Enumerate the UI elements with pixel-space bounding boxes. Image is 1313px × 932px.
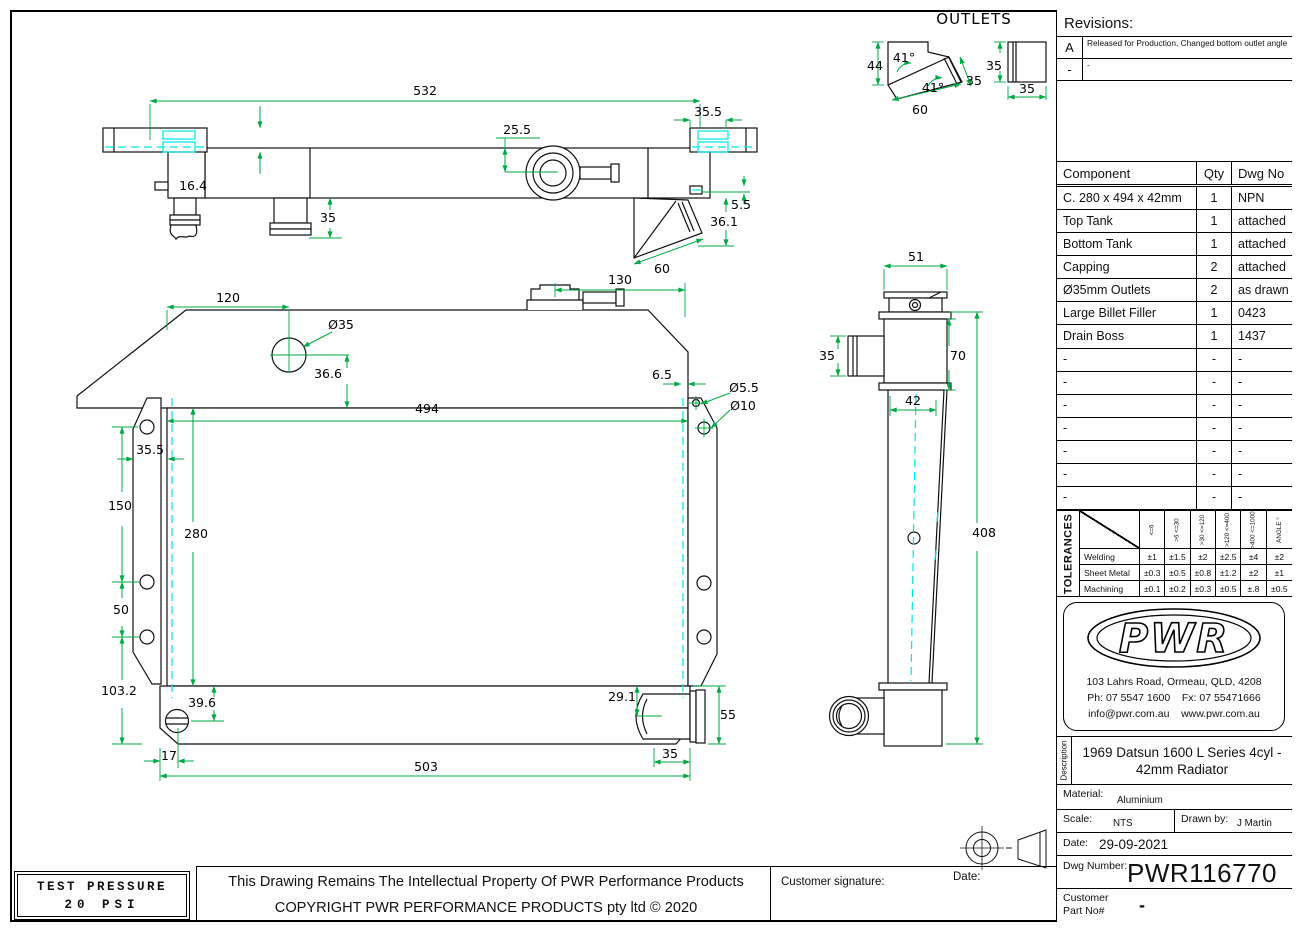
tolerances-label: TOLERANCES: [1062, 513, 1074, 594]
component-dwgno: -: [1232, 376, 1292, 389]
component-name: Drain Boss: [1057, 325, 1197, 347]
component-row: - - -: [1057, 464, 1292, 487]
component-row: Ø35mm Outlets 2 as drawn: [1057, 279, 1292, 302]
component-row: - - -: [1057, 487, 1292, 510]
tolerance-process: Machining: [1080, 581, 1140, 596]
component-dwgno: attached: [1232, 238, 1292, 251]
component-dwgno: -: [1232, 353, 1292, 366]
tolerance-process: Welding: [1080, 549, 1140, 564]
scale-cell: Scale: NTS: [1057, 810, 1175, 832]
date-block: Date: 29-09-2021: [1057, 832, 1292, 855]
component-name: -: [1057, 487, 1197, 509]
test-pressure-line1: TEST PRESSURE: [37, 878, 167, 896]
component-dwgno: attached: [1232, 215, 1292, 228]
revision-id: A: [1057, 37, 1083, 58]
date-value: 29-09-2021: [1099, 837, 1168, 852]
revisions-block: Revisions: A Released for Production, Ch…: [1057, 10, 1292, 161]
component-name: Ø35mm Outlets: [1057, 279, 1197, 301]
component-table: Component Qty Dwg No C. 280 x 494 x 42mm…: [1057, 161, 1292, 510]
component-name: -: [1057, 441, 1197, 463]
dwg-number-value: PWR116770: [1127, 858, 1277, 889]
test-pressure-line2: 20 PSI: [64, 896, 139, 914]
component-dwgno: -: [1232, 445, 1292, 458]
revisions-rows: A Released for Production, Changed botto…: [1057, 37, 1292, 81]
customer-part-value: -: [1139, 895, 1145, 916]
component-qty: -: [1197, 372, 1232, 394]
component-name: -: [1057, 395, 1197, 417]
tolerance-process: Sheet Metal: [1080, 565, 1140, 580]
component-qty: 2: [1197, 279, 1232, 301]
component-dwgno: attached: [1232, 261, 1292, 274]
component-row: Bottom Tank 1 attached: [1057, 233, 1292, 256]
component-table-header: Component Qty Dwg No: [1057, 162, 1292, 187]
component-dwgno: -: [1232, 468, 1292, 481]
tolerances-table: TOLERANCES <=6 >6 <=30 >30 <=120: [1057, 510, 1292, 596]
date-label: Date:: [1063, 837, 1088, 849]
revision-row: - -: [1057, 59, 1292, 81]
tolerance-row: Welding ±1 ±1.5 ±2 ±2.5 ±4 ±2: [1080, 549, 1292, 565]
footer-divider-v: [196, 866, 197, 922]
component-qty: 1: [1197, 325, 1232, 347]
component-dwgno: 0423: [1232, 307, 1292, 320]
component-name: Bottom Tank: [1057, 233, 1197, 255]
tolerance-row: Machining ±0.1 ±0.2 ±0.3 ±0.5 ±.8 ±0.5: [1080, 581, 1292, 596]
diagonal-cell: [1080, 511, 1140, 548]
dwg-number-label: Dwg Number:: [1063, 860, 1127, 872]
component-row: Capping 2 attached: [1057, 256, 1292, 279]
copyright-line2: COPYRIGHT PWR PERFORMANCE PRODUCTS pty l…: [200, 895, 772, 921]
company-phone-fax: Ph: 07 5547 1600 Fx: 07 55471666: [1064, 690, 1284, 706]
tolerance-range-header: >120 <=400: [1216, 511, 1241, 548]
tolerance-row: Sheet Metal ±0.3 ±0.5 ±0.8 ±1.2 ±2 ±1: [1080, 565, 1292, 581]
component-row: Drain Boss 1 1437: [1057, 325, 1292, 348]
component-name: Capping: [1057, 256, 1197, 278]
drawnby-cell: Drawn by: J Martin: [1175, 810, 1292, 832]
test-pressure-box: TEST PRESSURE 20 PSI: [14, 871, 190, 920]
material-value: Aluminium: [1117, 795, 1163, 806]
pwr-logo-text: PWR: [1119, 616, 1229, 662]
drawing-sheet: { "sheet": { "bg": "#ffffff", "line_colo…: [0, 0, 1313, 932]
company-frame: PWR 103 Lahrs Road, Ormeau, QLD, 4208 Ph…: [1063, 602, 1285, 731]
component-row: - - -: [1057, 349, 1292, 372]
pwr-logo: PWR: [1084, 607, 1264, 669]
drawnby-value: J Martin: [1237, 818, 1272, 829]
component-name: C. 280 x 494 x 42mm: [1057, 187, 1197, 209]
col-header-component: Component: [1057, 162, 1197, 184]
description-block: Description 1969 Datsun 1600 L Series 4c…: [1057, 736, 1292, 784]
col-header-qty: Qty: [1197, 162, 1232, 184]
col-header-dwgno: Dwg No: [1232, 167, 1292, 180]
component-qty: 1: [1197, 210, 1232, 232]
company-email-web: info@pwr.com.au www.pwr.com.au: [1064, 706, 1284, 722]
tolerances-header-row: <=6 >6 <=30 >30 <=120 >120 <=400: [1080, 511, 1292, 549]
company-address: 103 Lahrs Road, Ormeau, QLD, 4208: [1064, 674, 1284, 690]
tolerances-label-cell: TOLERANCES: [1057, 511, 1080, 596]
signature-date-label: Date:: [953, 871, 981, 883]
customer-signature-label: Customer signature:: [781, 876, 885, 888]
tolerances-grid: <=6 >6 <=30 >30 <=120 >120 <=400: [1080, 511, 1292, 596]
description-label: Description: [1060, 740, 1069, 780]
tolerance-range-header: >30 <=120: [1191, 511, 1216, 548]
drawnby-label: Drawn by:: [1181, 813, 1228, 825]
component-dwgno: -: [1232, 491, 1292, 504]
component-dwgno: as drawn: [1232, 284, 1292, 297]
component-qty: -: [1197, 349, 1232, 371]
company-block: PWR 103 Lahrs Road, Ormeau, QLD, 4208 Ph…: [1057, 596, 1292, 736]
component-qty: 1: [1197, 302, 1232, 324]
component-qty: 1: [1197, 187, 1232, 209]
revision-row: A Released for Production, Changed botto…: [1057, 37, 1292, 59]
material-label: Material:: [1063, 788, 1103, 800]
customer-signature-box: Customer signature: Date:: [770, 866, 1057, 922]
component-dwgno: NPN: [1232, 192, 1292, 205]
scale-label: Scale:: [1063, 813, 1092, 825]
tolerance-range-header: <=6: [1140, 511, 1165, 548]
component-row: - - -: [1057, 441, 1292, 464]
component-qty: 2: [1197, 256, 1232, 278]
revision-note: -: [1083, 59, 1292, 80]
tolerance-range-header: >400 <=1000: [1241, 511, 1266, 548]
copyright-line1: This Drawing Remains The Intellectual Pr…: [200, 869, 772, 895]
component-dwgno: -: [1232, 399, 1292, 412]
component-name: -: [1057, 372, 1197, 394]
component-name: Large Billet Filler: [1057, 302, 1197, 324]
tolerance-range-header: ANGLE °: [1267, 511, 1292, 548]
component-name: -: [1057, 418, 1197, 440]
component-row: C. 280 x 494 x 42mm 1 NPN: [1057, 187, 1292, 210]
component-name: -: [1057, 464, 1197, 486]
component-row: Top Tank 1 attached: [1057, 210, 1292, 233]
component-row: - - -: [1057, 418, 1292, 441]
customer-part-label-2: Part No#: [1063, 905, 1104, 917]
dwg-number-block: Dwg Number: PWR116770: [1057, 855, 1292, 888]
component-row: - - -: [1057, 395, 1292, 418]
revisions-title: Revisions:: [1057, 10, 1292, 37]
description-text: 1969 Datsun 1600 L Series 4cyl - 42mm Ra…: [1072, 737, 1292, 784]
revision-note: Released for Production, Changed bottom …: [1083, 37, 1292, 58]
material-block: Material: Aluminium: [1057, 784, 1292, 809]
component-row: Large Billet Filler 1 0423: [1057, 302, 1292, 325]
component-qty: 1: [1197, 233, 1232, 255]
component-row: - - -: [1057, 372, 1292, 395]
component-qty: -: [1197, 464, 1232, 486]
component-qty: -: [1197, 441, 1232, 463]
scale-drawnby-block: Scale: NTS Drawn by: J Martin: [1057, 809, 1292, 832]
component-qty: -: [1197, 395, 1232, 417]
customer-part-block: Customer Part No# -: [1057, 888, 1292, 922]
customer-part-label-1: Customer: [1063, 892, 1109, 904]
scale-value: NTS: [1113, 818, 1133, 829]
copyright-notice: This Drawing Remains The Intellectual Pr…: [200, 869, 772, 921]
component-name: Top Tank: [1057, 210, 1197, 232]
component-qty: -: [1197, 418, 1232, 440]
revision-id: -: [1057, 59, 1083, 80]
description-label-cell: Description: [1057, 737, 1072, 784]
component-qty: -: [1197, 487, 1232, 509]
component-dwgno: -: [1232, 422, 1292, 435]
tolerance-range-header: >6 <=30: [1165, 511, 1190, 548]
component-dwgno: 1437: [1232, 330, 1292, 343]
component-name: -: [1057, 349, 1197, 371]
